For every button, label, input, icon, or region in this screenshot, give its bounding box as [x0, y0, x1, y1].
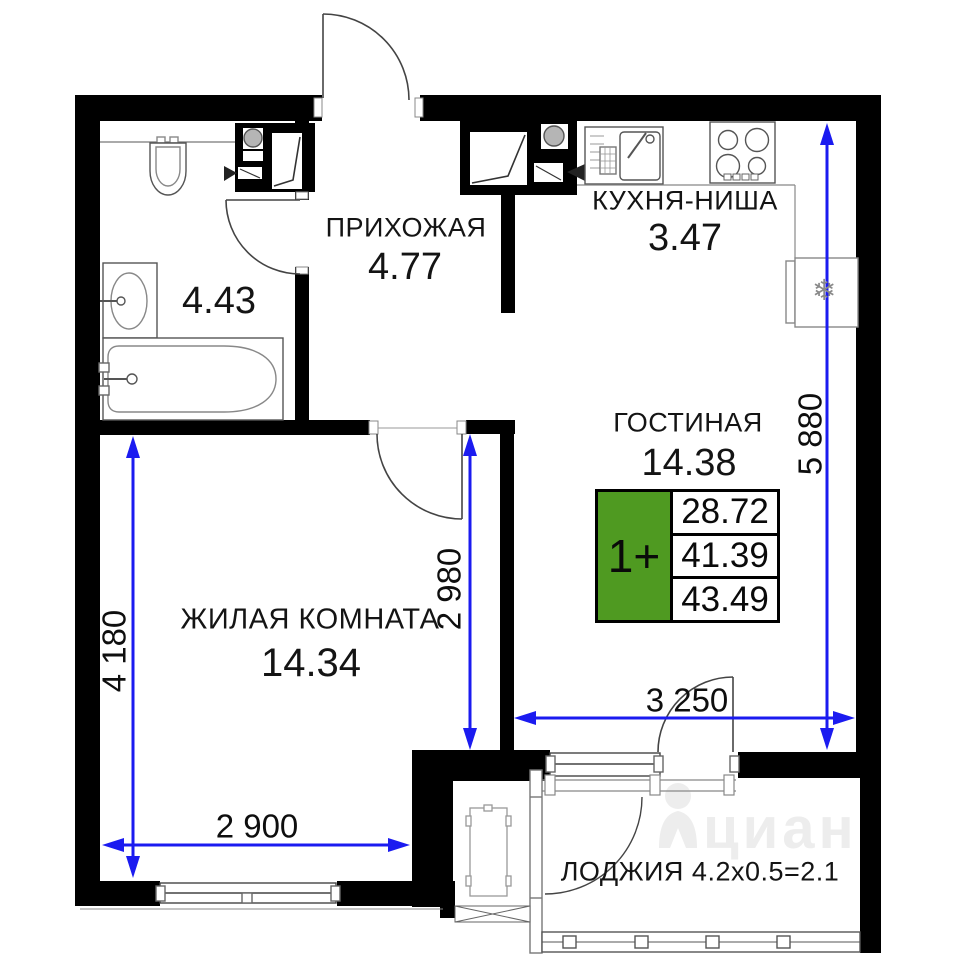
- shaft-box: [243, 151, 263, 161]
- loggia-left-wall: [530, 770, 542, 953]
- rooms-count-cell: 1+: [598, 492, 673, 620]
- apartment-area-value: 41.39: [673, 533, 777, 580]
- bathroom-door-arc: [226, 192, 308, 274]
- watermark-text: циан: [703, 800, 858, 858]
- living-room-area-label: 14.38: [641, 444, 736, 482]
- living-area-value: 28.72: [673, 492, 777, 533]
- living-room-name-label: ГОСТИНАЯ: [613, 410, 763, 437]
- wall-mid-lower: [500, 420, 514, 751]
- total-area-value: 43.49: [673, 579, 777, 620]
- wall-bottom-left: [75, 881, 160, 906]
- wall-balcony-south: [738, 752, 865, 778]
- shaft-vent-box: [243, 128, 263, 149]
- wall-loggia-right: [860, 752, 881, 953]
- shaft-box: [534, 163, 563, 182]
- bathroom-area-label: 4.43: [182, 282, 256, 320]
- dimension-2900: 2 900: [216, 810, 299, 843]
- shaft-duct-box: [470, 132, 527, 185]
- hallway-name-label: ПРИХОЖАЯ: [326, 215, 487, 242]
- loggia-label: ЛОДЖИЯ 4.2x0.5=2.1: [561, 859, 840, 886]
- floor-plan: циан: [0, 0, 960, 960]
- snowflake-icon: ❄: [812, 277, 836, 306]
- wall-closet-left: [412, 750, 453, 907]
- wall-bathroom-south: [75, 420, 370, 435]
- closet-window-hatch: [455, 906, 530, 922]
- kitchen-area-label: 3.47: [648, 219, 722, 257]
- areas-column: 28.72 41.39 43.49: [673, 492, 777, 620]
- dimension-4180: 4 180: [98, 610, 131, 693]
- bathtub-icon: [99, 338, 283, 420]
- stove-icon: [710, 122, 775, 183]
- entrance-door-arc: [314, 14, 423, 117]
- kitchen-sink-icon: [585, 127, 663, 184]
- dimension-5880: 5 880: [794, 393, 827, 476]
- bedroom-area-label: 14.34: [261, 643, 361, 683]
- wall-bathroom-east-lower: [295, 267, 309, 435]
- dimension-2980: 2 980: [433, 548, 466, 631]
- wall-bottom-stub: [440, 906, 458, 918]
- shaft-box: [238, 167, 262, 179]
- loggia-sill: [542, 775, 736, 795]
- bedroom-name-label: ЖИЛАЯ КОМНАТА: [181, 606, 440, 635]
- shaft-vent-box: [541, 124, 568, 149]
- dimension-3250: 3 250: [646, 684, 729, 717]
- shaft-duct-box: [272, 133, 302, 189]
- wall-right: [856, 95, 881, 778]
- hallway-area-label: 4.77: [368, 248, 442, 286]
- washbasin-icon: [100, 263, 157, 338]
- wall-top-left: [75, 95, 322, 121]
- wall-top-right: [420, 95, 881, 121]
- closet-cabinet: [466, 805, 511, 896]
- wall-left: [75, 95, 100, 906]
- apartment-info-badge: 1+ 28.72 41.39 43.49: [595, 489, 780, 623]
- loggia-glazing: [542, 932, 860, 952]
- kitchen-name-label: КУХНЯ-НИША: [592, 188, 778, 215]
- bedroom-door-arc: [369, 421, 466, 519]
- toilet-icon: [100, 137, 235, 195]
- wall-mid-upper: [501, 188, 515, 313]
- window-balcony: [546, 753, 739, 776]
